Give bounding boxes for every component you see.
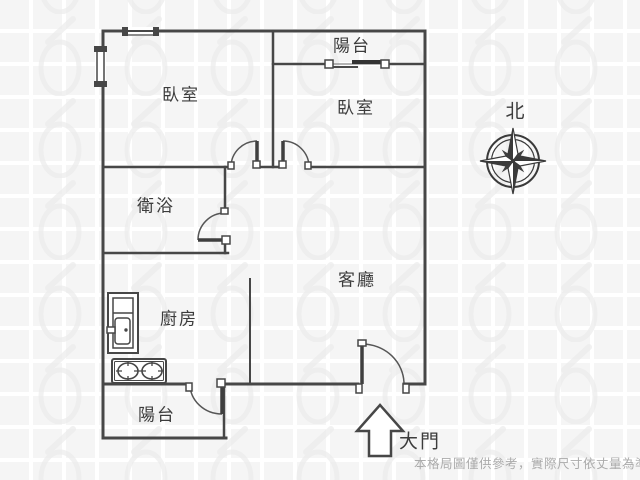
room-label-living-room: 客廳 bbox=[338, 273, 376, 290]
room-label-bedroom-left: 臥室 bbox=[162, 88, 200, 105]
sink-counter-icon bbox=[107, 293, 138, 353]
entrance-arrow-icon bbox=[357, 405, 403, 456]
room-label-bathroom: 衛浴 bbox=[137, 199, 175, 216]
room-label-kitchen: 廚房 bbox=[160, 312, 198, 329]
door-balcony-bottom bbox=[186, 379, 225, 414]
door-bedroom-right bbox=[279, 141, 311, 169]
compass-icon bbox=[480, 128, 546, 194]
room-label-bedroom-right: 臥室 bbox=[337, 101, 375, 118]
door-bedroom-left bbox=[228, 141, 260, 169]
stove-icon bbox=[112, 359, 166, 383]
disclaimer-text: 本格局圖僅供參考，實際尺寸依丈量為準 bbox=[414, 458, 640, 471]
floor-plan-canvas: 臥室 臥室 陽台 衛浴 廚房 客廳 陽台 北 大門 本格局圖僅供參考，實際尺寸依… bbox=[0, 0, 640, 480]
room-label-balcony-bottom: 陽台 bbox=[138, 408, 176, 425]
window-top bbox=[122, 27, 159, 36]
main-door-label: 大門 bbox=[399, 433, 441, 452]
floor-plan-drawing bbox=[0, 0, 640, 480]
sliding-door bbox=[325, 60, 389, 68]
room-label-balcony-top: 陽台 bbox=[333, 39, 371, 56]
door-main-entrance bbox=[356, 340, 409, 393]
north-label: 北 bbox=[505, 103, 526, 122]
door-bathroom bbox=[198, 208, 230, 244]
window-left bbox=[94, 46, 107, 87]
